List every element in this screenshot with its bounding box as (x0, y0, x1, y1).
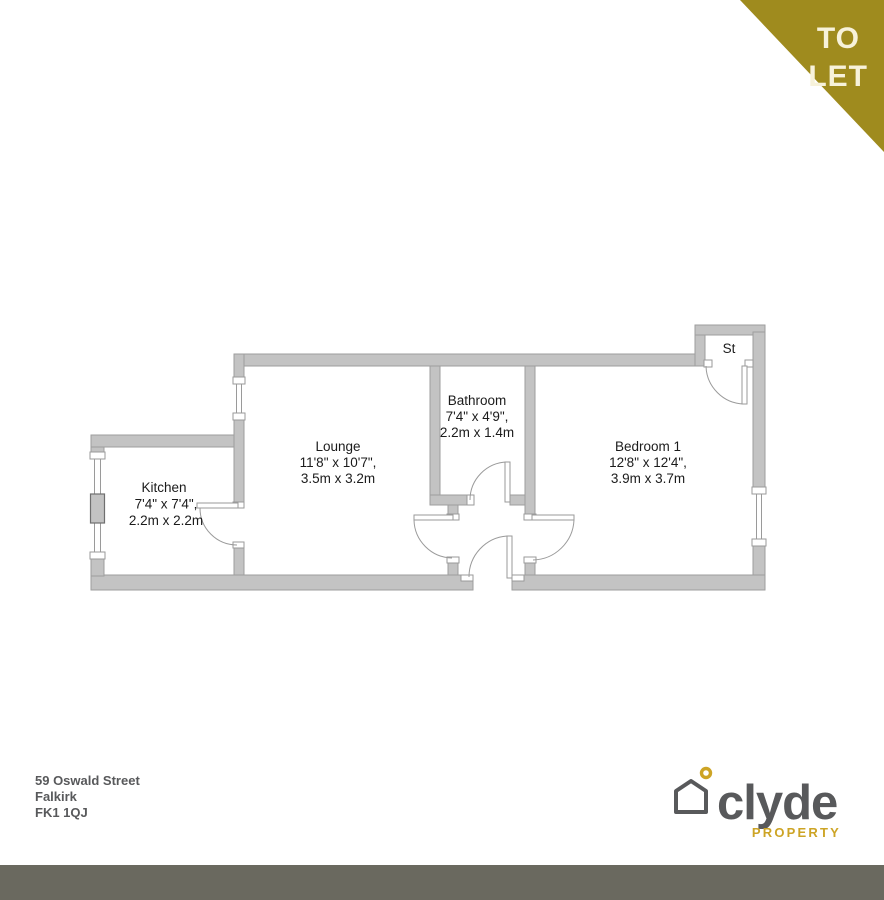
banner-line1: TO (817, 22, 860, 55)
address-line2: Falkirk (35, 789, 78, 804)
kitchen-window (90, 452, 105, 559)
brand-tagline: PROPERTY (752, 825, 841, 840)
footer-strip (0, 865, 884, 900)
brand-name: clyde (717, 776, 837, 830)
brand-logo: clyde PROPERTY (676, 769, 841, 841)
to-let-banner: TO LET (740, 0, 884, 152)
bedroom-window (752, 487, 766, 546)
lounge-metric: 3.5m x 3.2m (301, 471, 375, 486)
storage-door (704, 360, 753, 404)
bedroom-door (524, 514, 574, 563)
lounge-name: Lounge (315, 439, 360, 454)
floor-plan-canvas: TO LET (0, 0, 884, 900)
lounge-imperial: 11'8" x 10'7", (300, 455, 377, 470)
gold-dot-icon (702, 769, 711, 778)
page: TO LET (0, 0, 884, 900)
bathroom-metric: 2.2m x 1.4m (440, 425, 514, 440)
room-label-lounge: Lounge 11'8" x 10'7", 3.5m x 3.2m (300, 439, 377, 486)
front-door (461, 536, 524, 581)
house-icon (676, 781, 706, 812)
kitchen-imperial: 7'4" x 7'4", (135, 497, 198, 512)
bathroom-imperial: 7'4" x 4'9", (446, 409, 509, 424)
lounge-window (233, 377, 245, 420)
storage-label: St (723, 341, 736, 356)
kitchen-metric: 2.2m x 2.2m (129, 513, 203, 528)
lounge-door (414, 514, 459, 563)
bedroom1-imperial: 12'8" x 12'4", (609, 455, 687, 470)
address-line1: 59 Oswald Street (35, 773, 140, 788)
room-label-bedroom1: Bedroom 1 12'8" x 12'4", 3.9m x 3.7m (609, 439, 687, 486)
kitchen-name: Kitchen (141, 480, 186, 495)
room-label-bathroom: Bathroom 7'4" x 4'9", 2.2m x 1.4m (440, 393, 514, 440)
banner-line2: LET (808, 60, 868, 93)
room-label-kitchen: Kitchen 7'4" x 7'4", 2.2m x 2.2m (129, 480, 203, 528)
bedroom1-metric: 3.9m x 3.7m (611, 471, 685, 486)
address-line3: FK1 1QJ (35, 805, 88, 820)
address-block: 59 Oswald Street Falkirk FK1 1QJ (35, 773, 140, 820)
bathroom-name: Bathroom (448, 393, 507, 408)
kitchen-door (197, 502, 244, 548)
bathroom-door (467, 462, 510, 505)
bedroom1-name: Bedroom 1 (615, 439, 681, 454)
